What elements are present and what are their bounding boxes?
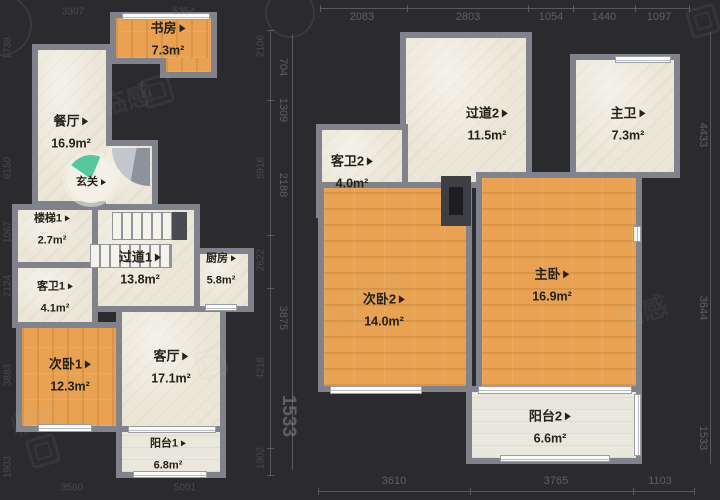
dim-label: 3875 — [277, 306, 289, 330]
window — [38, 424, 92, 432]
dim-label: 2803 — [456, 11, 480, 23]
dim-label: 3307 — [62, 7, 84, 18]
room-label-bedroom2-1[interactable]: 次卧1 12.3m² — [49, 353, 91, 396]
room-label-entry[interactable]: 玄关 — [76, 170, 106, 192]
window — [478, 386, 632, 394]
dim-label: 4218 — [256, 357, 267, 379]
dim-label: 1097 — [647, 11, 671, 23]
dim-label: 3560 — [61, 483, 83, 494]
watermark-logo — [24, 432, 61, 469]
room-arrow-icon — [183, 352, 189, 360]
room-label-kitchen[interactable]: 厨房 5.8m² — [206, 246, 236, 289]
dim-label: 5916 — [256, 157, 267, 179]
dim-label: 1054 — [539, 11, 563, 23]
dim-label: 4433 — [697, 123, 709, 147]
dim-label: 5354 — [173, 7, 195, 18]
window — [500, 455, 610, 462]
dimension-line — [318, 491, 695, 492]
dim-label: 1067 — [3, 221, 14, 243]
room-arrow-icon — [640, 109, 646, 117]
dim-label: 704 — [277, 58, 289, 76]
room-label-bedroom2-2[interactable]: 次卧2 14.0m² — [363, 288, 405, 331]
dimension-line — [710, 32, 711, 464]
room-arrow-icon — [367, 157, 373, 165]
room-arrow-icon — [65, 215, 70, 221]
room-arrow-icon — [85, 360, 91, 368]
room-arrow-icon — [502, 109, 508, 117]
dim-label: 1533 — [277, 395, 299, 437]
dim-label: 3644 — [697, 296, 709, 320]
room-label-balcony-2[interactable]: 阳台2 6.6m² — [529, 405, 571, 448]
room-label-master-bath[interactable]: 主卫 7.3m² — [610, 102, 645, 145]
window — [330, 386, 422, 394]
dim-label: 6150 — [3, 157, 14, 179]
dim-label: 1902 — [256, 447, 267, 469]
room-arrow-icon — [399, 295, 405, 303]
dim-label: 1533 — [697, 426, 709, 450]
watermark-text: 临感 — [6, 394, 66, 444]
room-arrow-icon — [231, 255, 236, 261]
room-arrow-icon — [565, 412, 571, 420]
room-arrow-icon — [180, 24, 186, 32]
room-arrow-icon — [83, 117, 89, 125]
dim-label: 2188 — [277, 173, 289, 197]
room-arrow-icon — [68, 283, 73, 289]
dim-label: 1440 — [592, 11, 616, 23]
room-label-living-1[interactable]: 客厅 17.1m² — [151, 345, 191, 388]
dim-label: 1103 — [648, 475, 672, 487]
room-label-hallway-2[interactable]: 过道2 11.5m² — [466, 102, 508, 145]
dim-label: 3765 — [544, 475, 568, 487]
dim-label: 3610 — [382, 475, 406, 487]
watermark-circle — [265, 0, 315, 38]
dim-label: 2124 — [3, 275, 14, 297]
room-arrow-icon — [101, 179, 106, 185]
dim-label: 5001 — [174, 483, 196, 494]
room-arrow-icon — [155, 253, 161, 261]
dim-label: 1738 — [3, 37, 14, 59]
room-arrow-icon — [181, 440, 186, 446]
room-label-hallway-1[interactable]: 过道1 13.8m² — [119, 246, 161, 289]
window — [633, 226, 641, 242]
window — [205, 304, 237, 311]
room-label-balcony-1[interactable]: 阳台1 6.8m² — [150, 431, 186, 474]
duct-shaft — [441, 176, 471, 226]
dim-label: 1309 — [277, 98, 289, 122]
room-label-dining[interactable]: 餐厅 16.9m² — [51, 110, 91, 153]
stairs-icon — [112, 212, 172, 240]
room-label-stairs-1[interactable]: 楼梯1 2.7m² — [34, 206, 70, 249]
dim-label: 2106 — [256, 35, 267, 57]
window — [634, 394, 641, 456]
room-study-ext — [160, 58, 217, 78]
room-label-study[interactable]: 书房 7.3m² — [150, 17, 185, 60]
dim-label: 3883 — [3, 364, 14, 386]
dim-label: 2083 — [350, 11, 374, 23]
dim-label: 1903 — [3, 456, 14, 478]
stairs-divider — [172, 212, 187, 240]
room-label-bath-1[interactable]: 客卫1 4.1m² — [37, 274, 73, 317]
window — [615, 56, 671, 63]
floorplan-viewer: 临感 临感 临感 临感 书房 7.3m² 餐厅 16.9m² — [0, 0, 720, 500]
room-arrow-icon — [564, 270, 570, 278]
dimension-line — [270, 30, 271, 476]
room-label-bath-2[interactable]: 客卫2 4.0m² — [331, 150, 373, 193]
dim-label: 2622 — [256, 249, 267, 271]
room-label-master-bedroom[interactable]: 主卧 16.9m² — [532, 263, 572, 306]
